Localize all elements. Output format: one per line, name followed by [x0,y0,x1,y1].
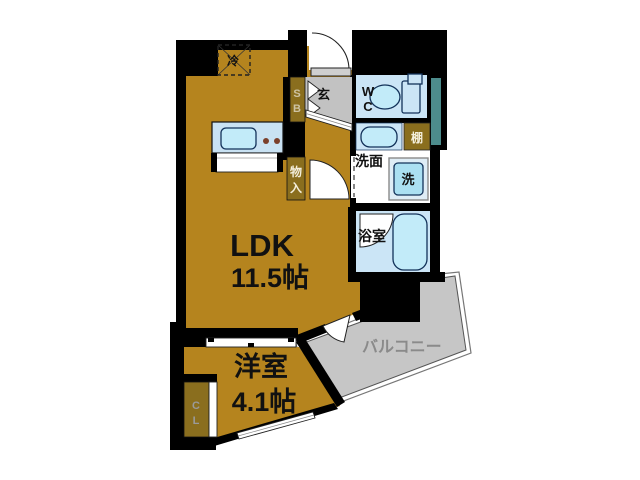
wall-ldk-western-divider [184,328,298,338]
shoe-box-label-line2: B [293,103,301,115]
entrance-label: 玄 [317,87,330,102]
kitchen-cabinet-end [277,153,283,172]
toilet-bowl [370,85,400,109]
storage-label-line2: 入 [290,181,302,195]
front-door-leaf [311,68,351,76]
sliding-door-tick [248,343,254,347]
stove-burner-icon [274,138,280,144]
wall-kitchen-side [283,77,290,118]
wall-bath-left [348,207,356,282]
wc-label-line2: C [363,99,373,114]
front-door-icon [309,30,352,76]
wall-top-left-corner [176,40,218,76]
kitchen-sink [221,128,256,149]
kitchen-cabinet-end [211,153,217,172]
bathroom-label: 浴室 [358,228,386,244]
closet-label-line1: C [192,400,200,412]
sliding-door-tick [208,338,214,342]
closet-door [209,382,217,437]
kitchen-counter-icon [211,122,283,172]
wall-top-right [352,30,447,75]
washing-machine-label: 洗 [401,172,414,187]
wall-washroom-bath-divider [352,203,432,211]
wall-right-mid [430,150,440,282]
storage-label-line1: 物 [290,164,302,179]
wall-entrance-left [288,30,307,77]
stove-burner-icon [263,138,269,144]
western-room-label: 洋室 [234,351,288,382]
wall-hall-column [283,118,305,160]
bathtub-icon [393,214,427,270]
kitchen-cabinet-front [216,153,278,172]
wall-closet-top [184,374,217,382]
closet-label-line2: L [193,415,200,427]
shelf-label: 棚 [411,130,423,145]
wall-left-lower [170,322,184,450]
toilet-lid [408,74,422,84]
floor-plan-page: LDK 11.5帖 洋室 4.1帖 バルコニー 浴室 洗面 W C 玄 冷 S … [0,0,640,480]
ldk-label: LDK [230,228,294,263]
washroom-label: 洗面 [355,153,383,169]
wall-divider-left-stub [184,338,206,347]
ldk-size-label: 11.5帖 [231,263,309,293]
shoe-box-label-line1: S [293,88,300,100]
pipe-duct [431,78,441,145]
western-room-size-label: 4.1帖 [232,387,297,417]
sliding-door-tick [288,338,294,342]
washbasin-icon [361,127,397,147]
wall-bath-bottom [352,272,445,282]
ldk-western-sliding-door [206,338,296,347]
refrigerator-label: 冷 [227,53,239,68]
wc-label-line1: W [362,84,375,99]
floor-plan: LDK 11.5帖 洋室 4.1帖 バルコニー 浴室 洗面 W C 玄 冷 S … [0,0,640,480]
wall-left [176,40,186,338]
balcony-label: バルコニー [362,338,442,356]
toilet-tank [402,81,420,113]
